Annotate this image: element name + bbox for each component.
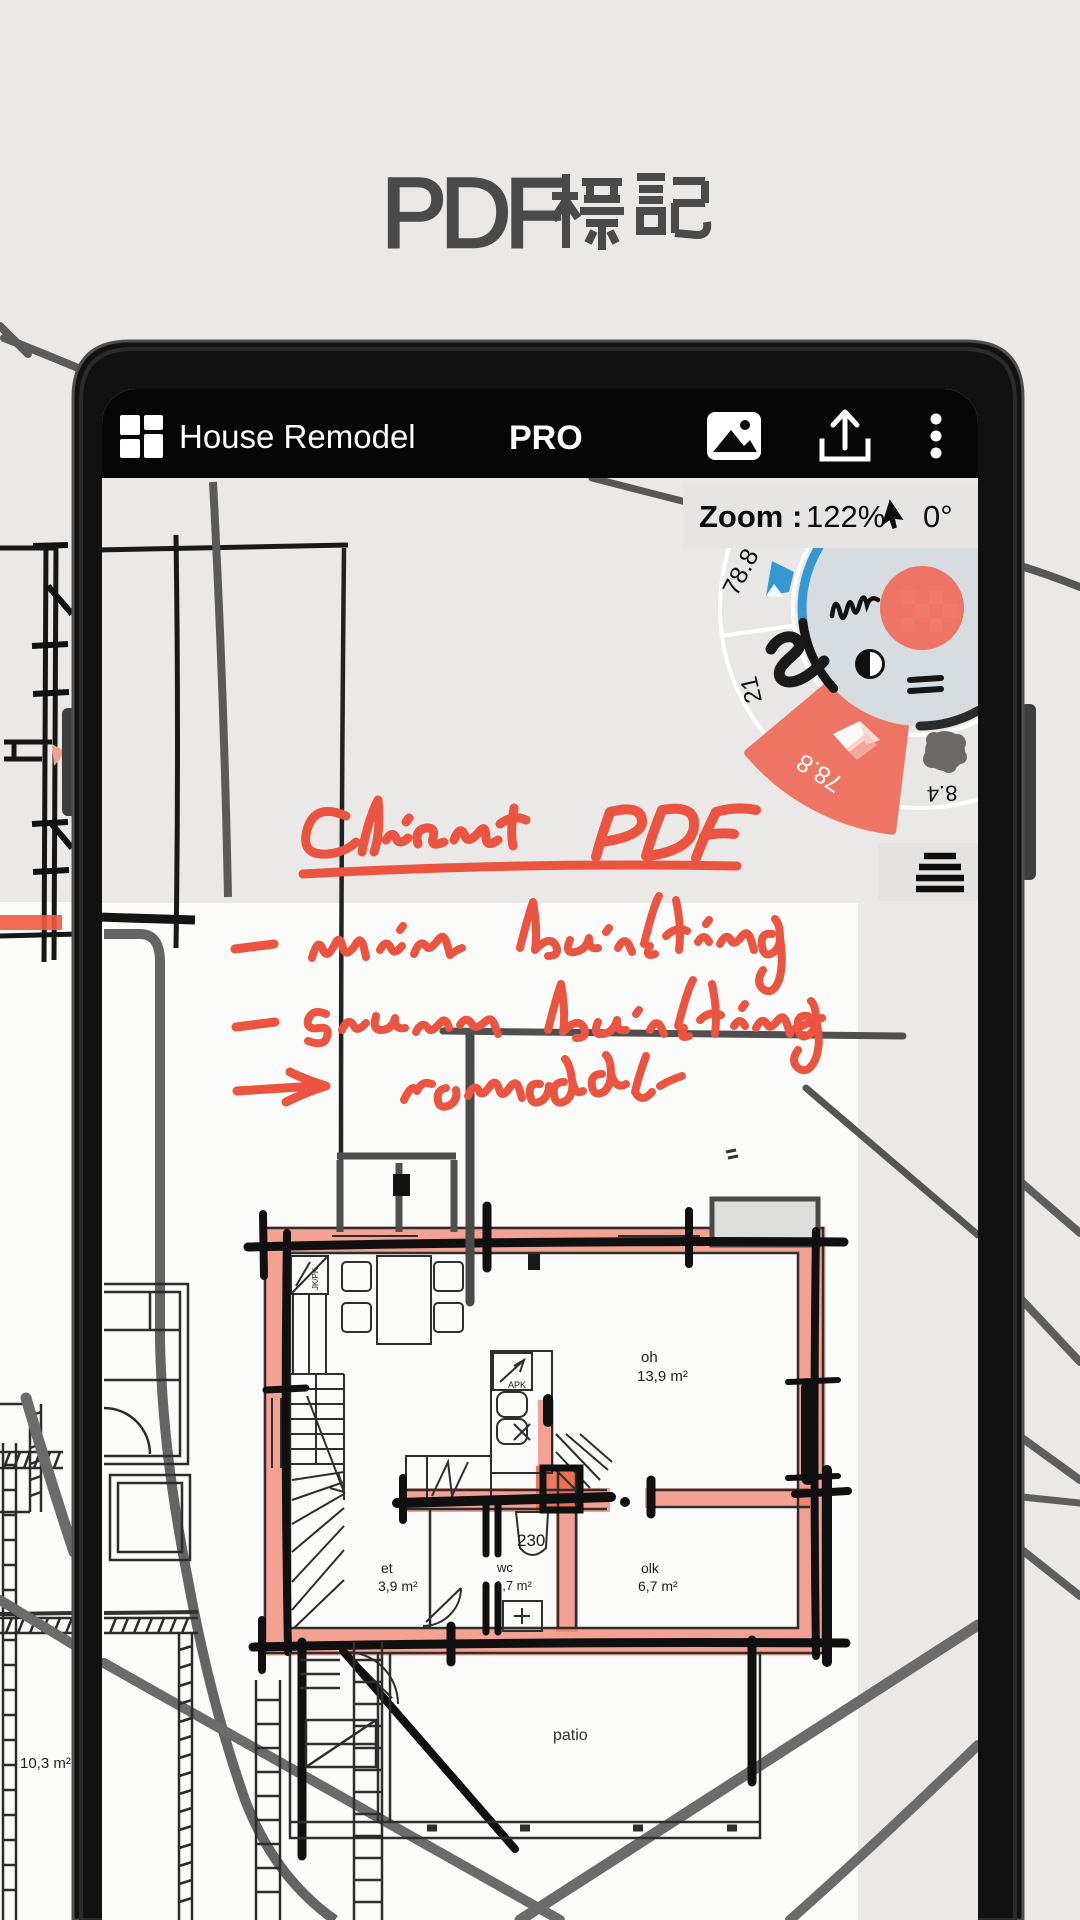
svg-text:patio: patio (553, 1727, 588, 1744)
svg-text:oh: oh (641, 1349, 658, 1366)
svg-text:3,9 m²: 3,9 m² (378, 1578, 418, 1594)
svg-text:APK: APK (508, 1380, 526, 1390)
svg-text:1,7 m²: 1,7 m² (495, 1578, 533, 1593)
svg-text:6,7 m²: 6,7 m² (638, 1578, 678, 1594)
svg-text:JK/PK: JK/PK (311, 1267, 320, 1290)
svg-text:wc: wc (496, 1560, 513, 1575)
svg-text:230: 230 (517, 1531, 545, 1550)
svg-text:Zoom :: Zoom : (699, 499, 802, 534)
svg-text:122%: 122% (806, 499, 885, 534)
svg-text:House Remodel: House Remodel (179, 418, 416, 455)
svg-text:PRO: PRO (509, 419, 583, 457)
svg-text:PDF: PDF (381, 157, 562, 268)
svg-text:0°: 0° (923, 499, 953, 534)
svg-text:et: et (381, 1560, 393, 1576)
svg-text:13,9 m²: 13,9 m² (637, 1368, 688, 1385)
svg-text:10,3 m²: 10,3 m² (20, 1755, 71, 1772)
svg-text:8.4: 8.4 (927, 780, 958, 806)
svg-text:olk: olk (641, 1560, 660, 1576)
